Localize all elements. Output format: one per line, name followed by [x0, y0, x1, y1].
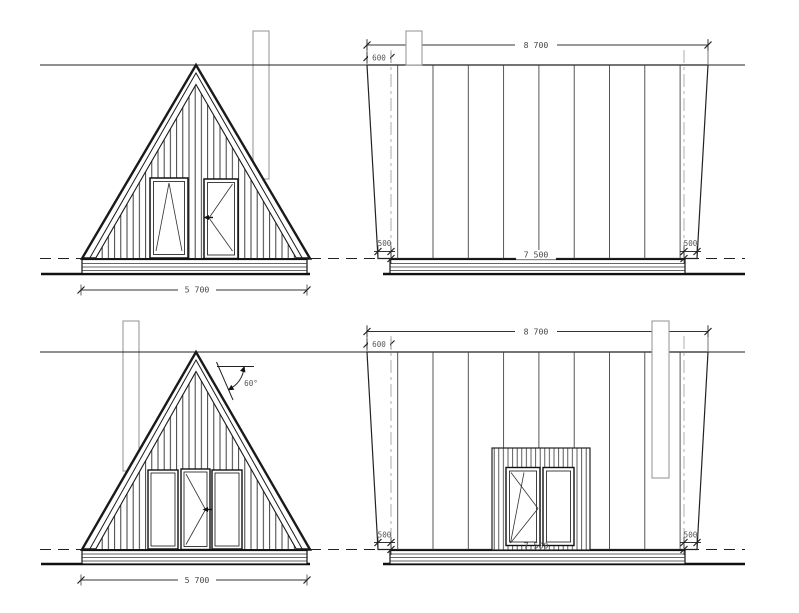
roof-pitch-annotation: 60° [217, 362, 258, 400]
elevations-svg: 5 700 8 700 600 [0, 0, 799, 613]
side-top-base-width-label: 7 500 [524, 250, 549, 260]
chimney-front-bottom [123, 321, 139, 471]
dimension-front-bottom-width: 5 700 [78, 575, 311, 586]
angle-arrowhead-bottom-icon [228, 385, 234, 390]
glazing-front-bottom-right [212, 470, 242, 549]
side-bottom-total-width-label: 8 700 [524, 327, 549, 337]
side-elevation-bottom: 8 700 600 500 [364, 321, 712, 564]
front-elevation-bottom: 60° 5 7 [78, 352, 311, 586]
front-elevation-top: 5 700 [78, 65, 311, 296]
dimension-front-top-width: 5 700 [78, 285, 311, 296]
deck-front-bottom [82, 551, 307, 565]
side-elevation-top: 8 700 600 500 [364, 31, 712, 274]
front-top-width-label: 5 700 [185, 285, 210, 295]
glazing-front-bottom-left [148, 470, 178, 549]
chimney-side-top [406, 31, 422, 65]
deck-side-bottom [390, 551, 685, 565]
door-front-top [204, 179, 239, 259]
side-bottom-roof-offset-label: 600 [372, 340, 386, 349]
side-bottom-overhang-left-label: 500 [378, 531, 392, 540]
front-bottom-width-label: 5 700 [185, 575, 210, 585]
roof-angle-label: 60° [244, 379, 258, 388]
dimension-side-top-roof-offset: 600 [364, 52, 395, 63]
architectural-drawing-sheet: 5 700 8 700 600 [0, 0, 799, 613]
door-front-bottom [181, 469, 212, 550]
side-bottom-overhang-right-label: 500 [684, 531, 698, 540]
side-top-overhang-left-label: 500 [378, 239, 392, 248]
door-assembly-side-bottom [492, 448, 590, 550]
side-wall-top [367, 65, 708, 259]
dimension-side-bottom-roof-offset: 600 [364, 339, 395, 350]
side-top-roof-offset-label: 600 [372, 54, 386, 63]
chimney-side-bottom [652, 321, 669, 478]
side-top-overhang-right-label: 500 [684, 239, 698, 248]
deck-side-top [390, 260, 685, 274]
deck-front-top [82, 260, 307, 274]
side-top-total-width-label: 8 700 [524, 40, 549, 50]
chimney-front-top [253, 31, 269, 179]
side-bottom-base-width-label: 7 500 [524, 541, 549, 551]
window-front-top-left [150, 178, 188, 258]
